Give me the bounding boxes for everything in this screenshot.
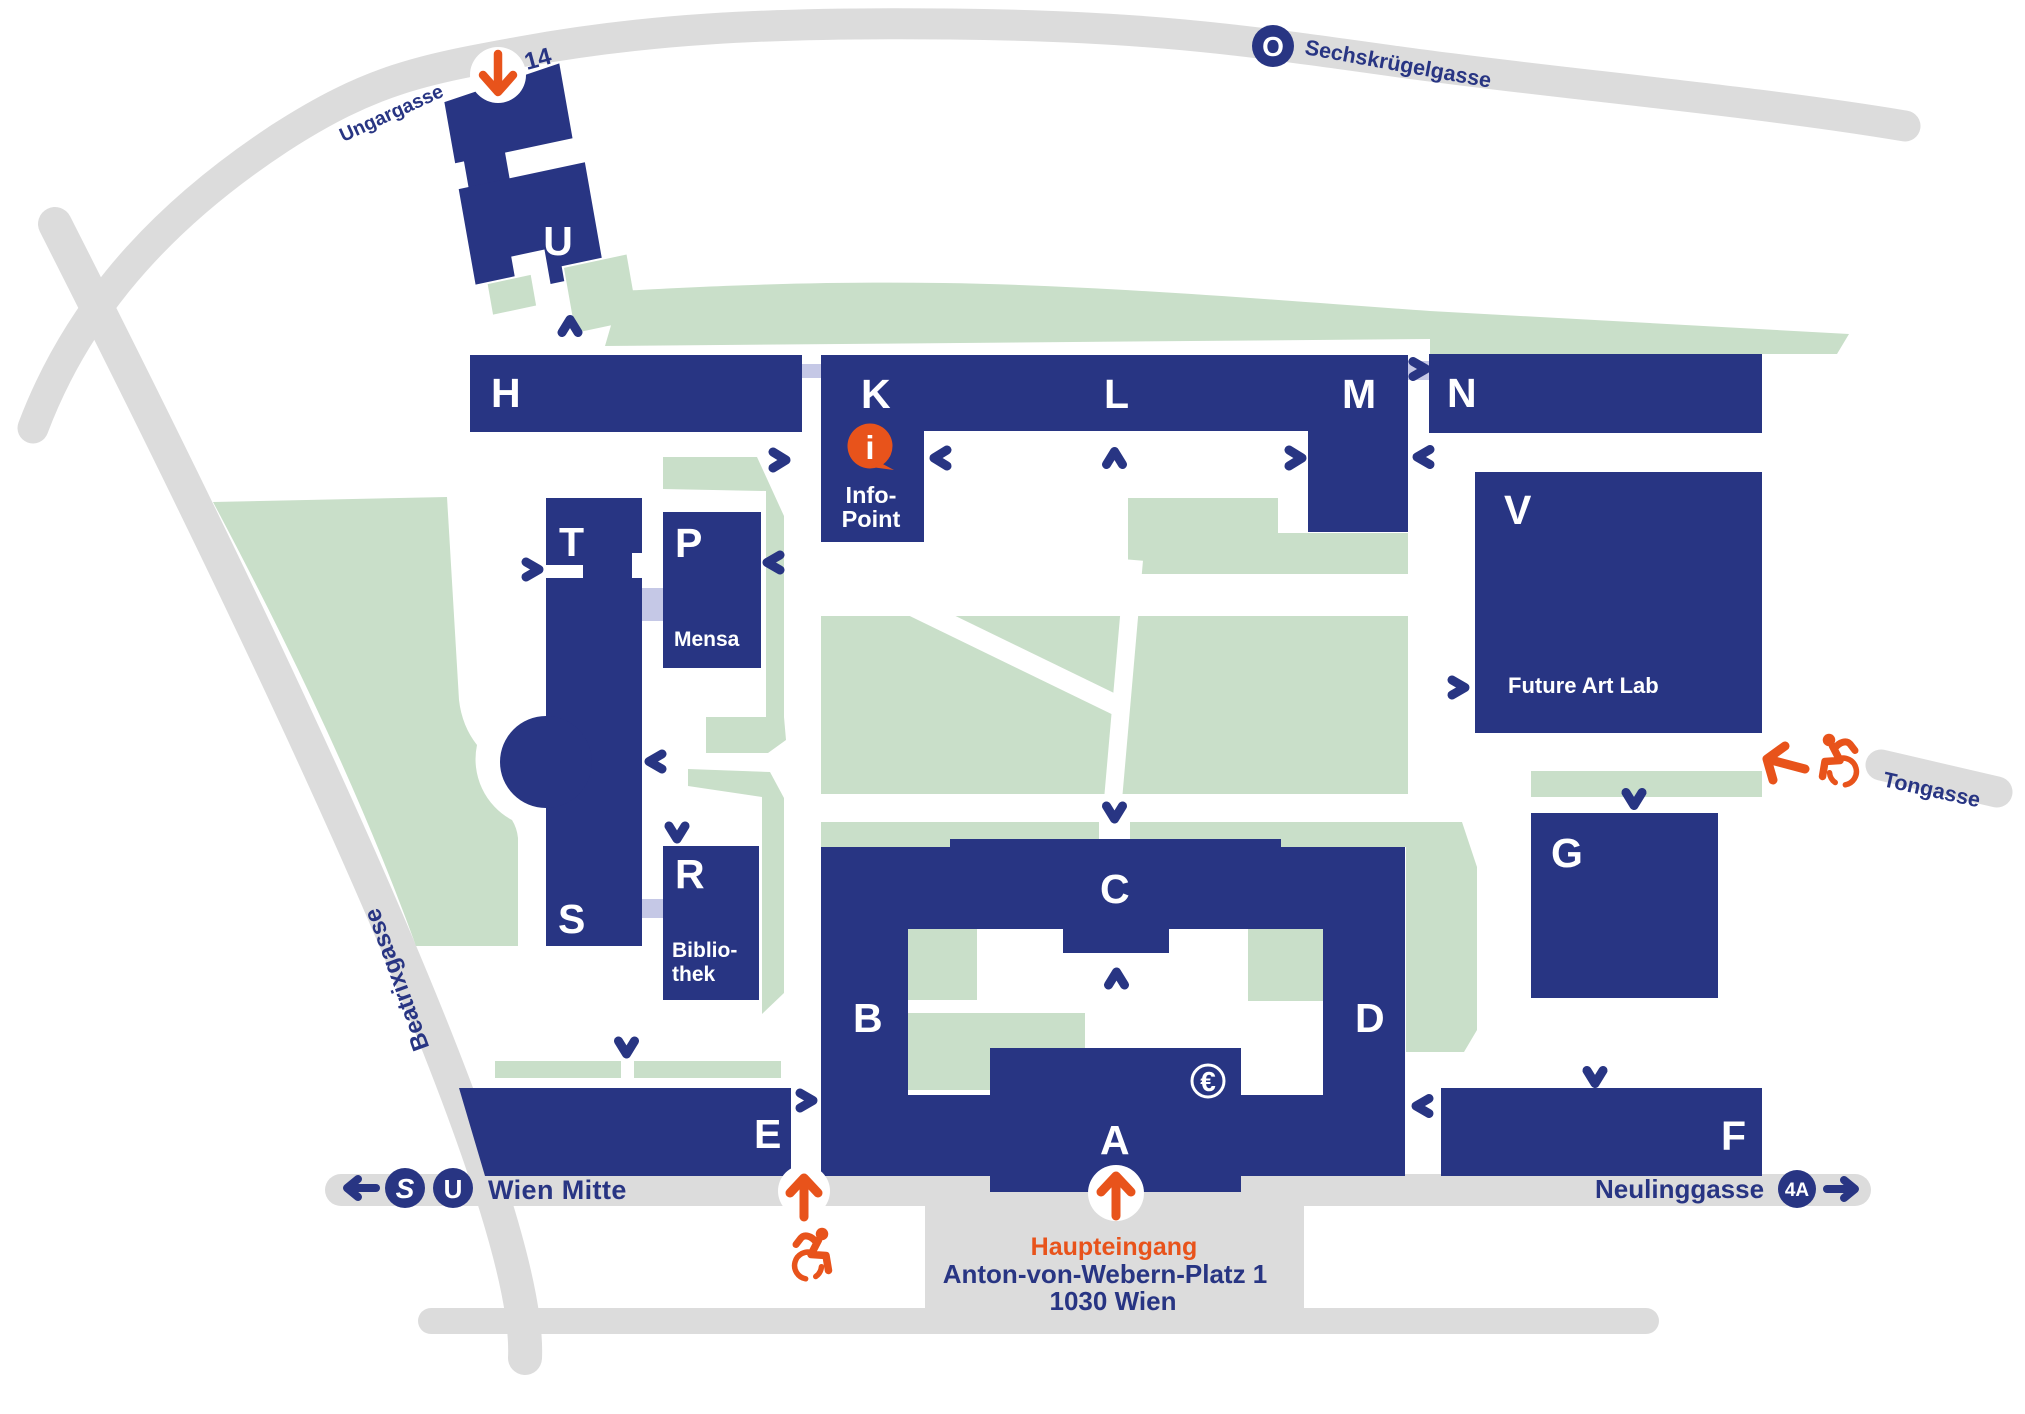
svg-text:S: S: [396, 1173, 415, 1204]
svg-text:Future Art Lab: Future Art Lab: [1508, 673, 1659, 698]
svg-text:P: P: [675, 520, 702, 566]
svg-text:V: V: [1504, 487, 1532, 533]
svg-text:O: O: [1262, 31, 1284, 62]
svg-text:i: i: [865, 429, 874, 466]
svg-text:U: U: [543, 218, 573, 264]
svg-text:L: L: [1104, 371, 1129, 417]
svg-text:Mensa: Mensa: [674, 628, 740, 651]
svg-text:Haupteingang: Haupteingang: [1031, 1233, 1198, 1261]
svg-text:U: U: [444, 1174, 463, 1204]
svg-text:T: T: [559, 519, 584, 565]
svg-text:E: E: [754, 1111, 781, 1157]
svg-text:Biblio-: Biblio-: [672, 939, 737, 962]
svg-text:Wien Mitte: Wien Mitte: [488, 1175, 627, 1205]
svg-text:M: M: [1342, 371, 1376, 417]
svg-text:F: F: [1721, 1113, 1746, 1159]
svg-text:K: K: [861, 371, 891, 417]
svg-text:1030 Wien: 1030 Wien: [1050, 1286, 1177, 1316]
svg-text:thek: thek: [672, 963, 716, 986]
svg-text:D: D: [1355, 995, 1385, 1041]
svg-text:H: H: [491, 370, 521, 416]
svg-text:Info-: Info-: [846, 482, 897, 508]
svg-text:Point: Point: [842, 506, 901, 532]
svg-text:4A: 4A: [1785, 1180, 1810, 1201]
svg-text:R: R: [675, 851, 705, 897]
svg-text:G: G: [1551, 830, 1583, 876]
svg-text:Anton-von-Webern-Platz 1: Anton-von-Webern-Platz 1: [943, 1259, 1268, 1289]
svg-text:C: C: [1100, 866, 1130, 912]
svg-text:€: €: [1200, 1066, 1216, 1097]
svg-text:B: B: [853, 995, 883, 1041]
svg-text:Neulinggasse: Neulinggasse: [1595, 1174, 1764, 1204]
svg-text:S: S: [558, 896, 585, 942]
svg-text:N: N: [1447, 370, 1477, 416]
svg-text:A: A: [1100, 1117, 1130, 1163]
